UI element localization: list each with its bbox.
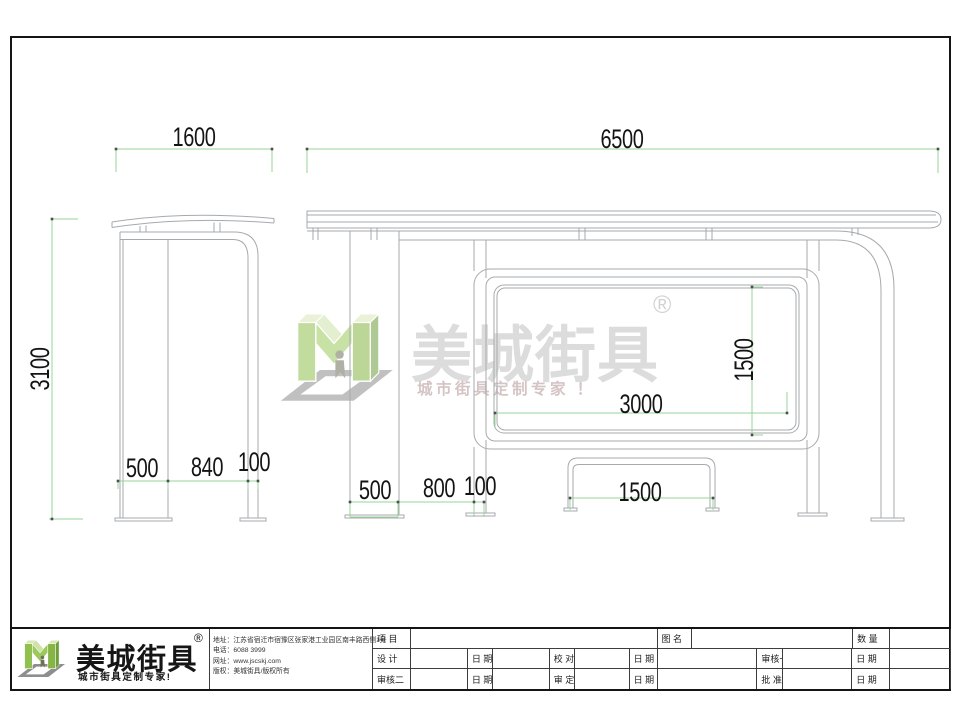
field-date1-label: 日 期 bbox=[468, 649, 493, 669]
field-proofread-label: 校 对 bbox=[550, 649, 575, 669]
field-date2-label: 日 期 bbox=[630, 649, 658, 669]
field-finalize-label: 审 定 bbox=[550, 669, 575, 689]
titleblock-divider bbox=[209, 629, 210, 689]
field-date3-label: 日 期 bbox=[852, 649, 890, 669]
contact-address: 地址：江苏省宿迁市宿豫区张家港工业园区南丰路西侧1号 bbox=[213, 636, 371, 646]
titleblock-row-3: 审核二 日 期 审 定 日 期 批 准 日 期 bbox=[373, 669, 951, 689]
field-approve-value bbox=[783, 669, 852, 689]
dim-bench-width: 1500 bbox=[596, 478, 685, 506]
dim-panel-width: 3000 bbox=[597, 390, 686, 418]
titleblock-row-2: 设 计 日 期 校 对 日 期 审核一 日 期 bbox=[373, 649, 951, 669]
field-date3-value bbox=[890, 649, 951, 669]
field-project-label: 项 目 bbox=[373, 629, 411, 649]
field-date5-label: 日 期 bbox=[630, 669, 658, 689]
contact-website: 网址：www.jscskj.com bbox=[213, 657, 371, 667]
field-reviewer2-value bbox=[411, 669, 468, 689]
dim-side-height: 3100 bbox=[26, 325, 54, 414]
field-date6-value bbox=[890, 669, 951, 689]
field-date5-value bbox=[658, 669, 758, 689]
company-registered-icon: ® bbox=[194, 631, 203, 645]
field-date4-label: 日 期 bbox=[468, 669, 493, 689]
contact-copyright: 版权：美城街具/版权所有 bbox=[213, 667, 371, 677]
contact-phone: 电话：6088 3999 bbox=[213, 646, 371, 656]
dim-front-width: 6500 bbox=[578, 125, 667, 153]
field-quantity-value bbox=[890, 629, 951, 649]
field-reviewer2-label: 审核二 bbox=[373, 669, 411, 689]
field-drawing-name-value bbox=[692, 629, 853, 649]
field-designer-value bbox=[411, 649, 468, 669]
dim-panel-height: 1500 bbox=[730, 316, 758, 405]
titleblock-row-1: 项 目 图 名 数 量 bbox=[373, 629, 951, 649]
field-designer-label: 设 计 bbox=[373, 649, 411, 669]
company-tagline: 城市街具定制专家! bbox=[78, 669, 172, 683]
titleblock-table: 项 目 图 名 数 量 设 计 日 期 校 对 日 期 审核一 日 期 审核二 … bbox=[372, 629, 951, 689]
dim-front-post: 100 bbox=[436, 472, 525, 500]
field-proofread-value bbox=[575, 649, 630, 669]
field-finalize-value bbox=[575, 669, 630, 689]
field-project-value bbox=[411, 629, 658, 649]
field-date6-label: 日 期 bbox=[852, 669, 890, 689]
field-date4-value bbox=[493, 669, 550, 689]
field-approve-label: 批 准 bbox=[757, 669, 783, 689]
company-logo-icon bbox=[16, 633, 76, 683]
dim-side-width: 1600 bbox=[150, 123, 239, 151]
field-date1-value bbox=[493, 649, 550, 669]
cad-drawing bbox=[0, 0, 960, 704]
dim-side-post: 100 bbox=[210, 448, 299, 476]
field-drawing-name-label: 图 名 bbox=[658, 629, 693, 649]
company-contact-block: 地址：江苏省宿迁市宿豫区张家港工业园区南丰路西侧1号 电话：6088 3999 … bbox=[213, 636, 371, 677]
field-quantity-label: 数 量 bbox=[853, 629, 890, 649]
field-reviewer1-label: 审核一 bbox=[757, 649, 783, 669]
field-date2-value bbox=[658, 649, 758, 669]
blueprint-page: 美城街具 ® 城市街具定制专家 ！ bbox=[0, 0, 960, 704]
field-reviewer1-value bbox=[783, 649, 852, 669]
